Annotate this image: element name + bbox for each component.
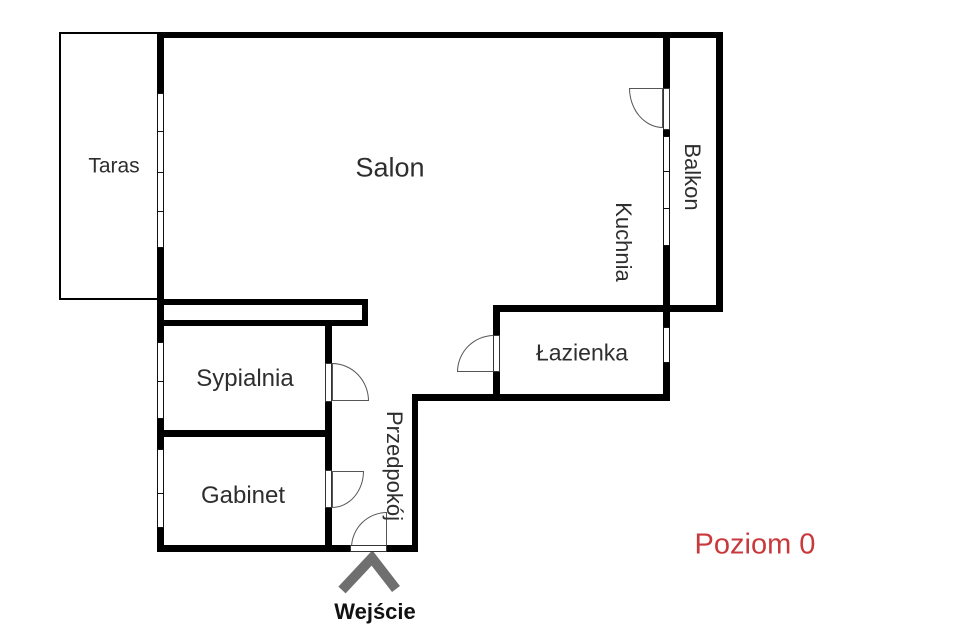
taras-salon-window: [157, 93, 164, 248]
lazienka-window: [663, 327, 670, 363]
wall-sypialnia-gabinet-divider: [157, 430, 332, 437]
room-label-kuchnia: Kuchnia: [612, 202, 634, 282]
wall-sypialnia-right-upper: [325, 320, 332, 363]
wall-lazienka-top-balkon-bottom: [493, 305, 723, 312]
sypialnia-door-arc: [332, 363, 369, 401]
room-label-taras: Taras: [88, 156, 139, 177]
entrance-door: [350, 545, 387, 552]
wall-gabinet-right-lower: [325, 508, 332, 546]
wall-lazienka-left-lower: [493, 372, 500, 401]
room-label-sypialnia: Sypialnia: [196, 367, 293, 391]
wall-left-mid: [157, 248, 164, 342]
gabinet-door: [325, 470, 332, 508]
wall-balkon-right: [716, 32, 723, 312]
sypialnia-window: [157, 342, 164, 419]
wall-przedpokoj-right: [412, 396, 418, 552]
gabinet-window: [157, 449, 164, 528]
room-label-gabinet: Gabinet: [201, 484, 285, 508]
room-label-przedpokoj: Przedpokój: [383, 411, 405, 521]
kuchnia-balkon-window: [663, 136, 670, 246]
wall-przedpokoj-lazienka-bottom: [412, 394, 669, 401]
floor-plan: Taras Salon Kuchnia Balkon Łazienka Sypi…: [0, 0, 961, 628]
kuchnia-balkon-door-arc: [629, 88, 663, 128]
wall-bottom-left: [157, 545, 350, 552]
kuchnia-balkon-door: [663, 88, 670, 130]
level-label: Poziom 0: [695, 531, 816, 560]
lazienka-door: [493, 335, 500, 372]
entrance-label: Wejście: [334, 601, 416, 623]
wall-top: [157, 32, 723, 38]
lazienka-door-arc: [457, 335, 494, 372]
wall-right-mid: [663, 246, 670, 327]
wall-lazienka-right-lower: [663, 363, 670, 401]
wall-right-above-door: [663, 32, 670, 88]
entrance-arrow-icon: [332, 552, 406, 596]
room-label-salon: Salon: [355, 155, 424, 182]
sypialnia-door: [325, 363, 332, 402]
gabinet-door-arc: [332, 471, 364, 508]
wall-lazienka-left-upper: [493, 305, 500, 335]
salon-sypialnia-wall-band: [157, 299, 368, 326]
room-label-lazienka: Łazienka: [536, 342, 628, 365]
room-label-balkon: Balkon: [681, 143, 703, 210]
wall-left-upper: [157, 32, 164, 93]
